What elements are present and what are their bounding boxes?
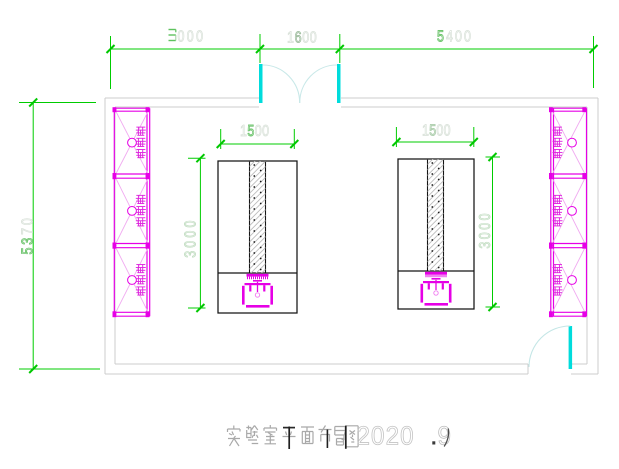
svg-text:53: 53 — [19, 235, 37, 255]
svg-text:3000: 3000 — [477, 211, 495, 249]
svg-text:5: 5 — [429, 122, 436, 140]
svg-text:3000: 3000 — [182, 217, 200, 257]
svg-text:5: 5 — [437, 28, 446, 46]
svg-text:2020: 2020 — [357, 422, 415, 451]
svg-text:000: 000 — [178, 28, 206, 46]
svg-text:6: 6 — [295, 29, 303, 47]
svg-text:5: 5 — [247, 123, 254, 141]
